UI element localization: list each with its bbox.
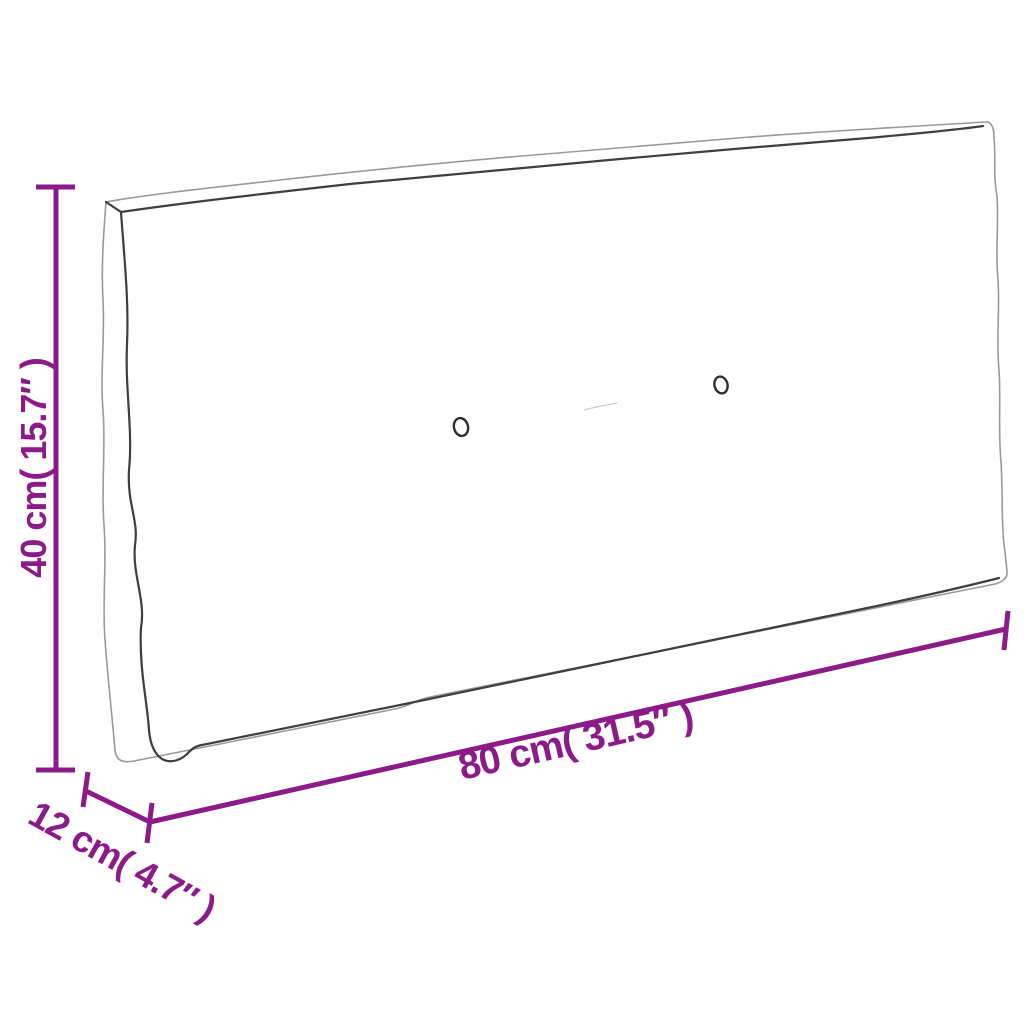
cushion-outline — [102, 122, 1007, 762]
depth-dimension-tick-left — [83, 772, 88, 807]
length-dimension-tick-right — [1004, 611, 1008, 650]
depth-dimension-line — [86, 791, 150, 822]
cushion-button-right — [713, 375, 730, 395]
cushion-seam-top — [121, 126, 983, 212]
cushion-seam-left — [121, 212, 202, 761]
cushion-drawing — [102, 122, 1007, 762]
length-dimension-tick-middle — [147, 803, 152, 843]
cushion-crease — [584, 403, 617, 410]
dimension-diagram: 40 cm( 15.7″ ) 12 cm( 4.7″ ) 80 cm( 31.5… — [0, 0, 1024, 1024]
depth-dimension: 12 cm( 4.7″ ) — [22, 772, 222, 929]
length-dimension: 80 cm( 31.5″ ) — [147, 611, 1008, 843]
height-dimension-label: 40 cm( 15.7″ ) — [13, 358, 54, 577]
cushion-button-left — [452, 417, 470, 438]
height-dimension: 40 cm( 15.7″ ) — [13, 187, 75, 770]
length-dimension-label: 80 cm( 31.5″ ) — [454, 694, 696, 789]
dimension-diagram-page: 40 cm( 15.7″ ) 12 cm( 4.7″ ) 80 cm( 31.5… — [0, 0, 1024, 1024]
cushion-seam-corner — [106, 202, 121, 212]
